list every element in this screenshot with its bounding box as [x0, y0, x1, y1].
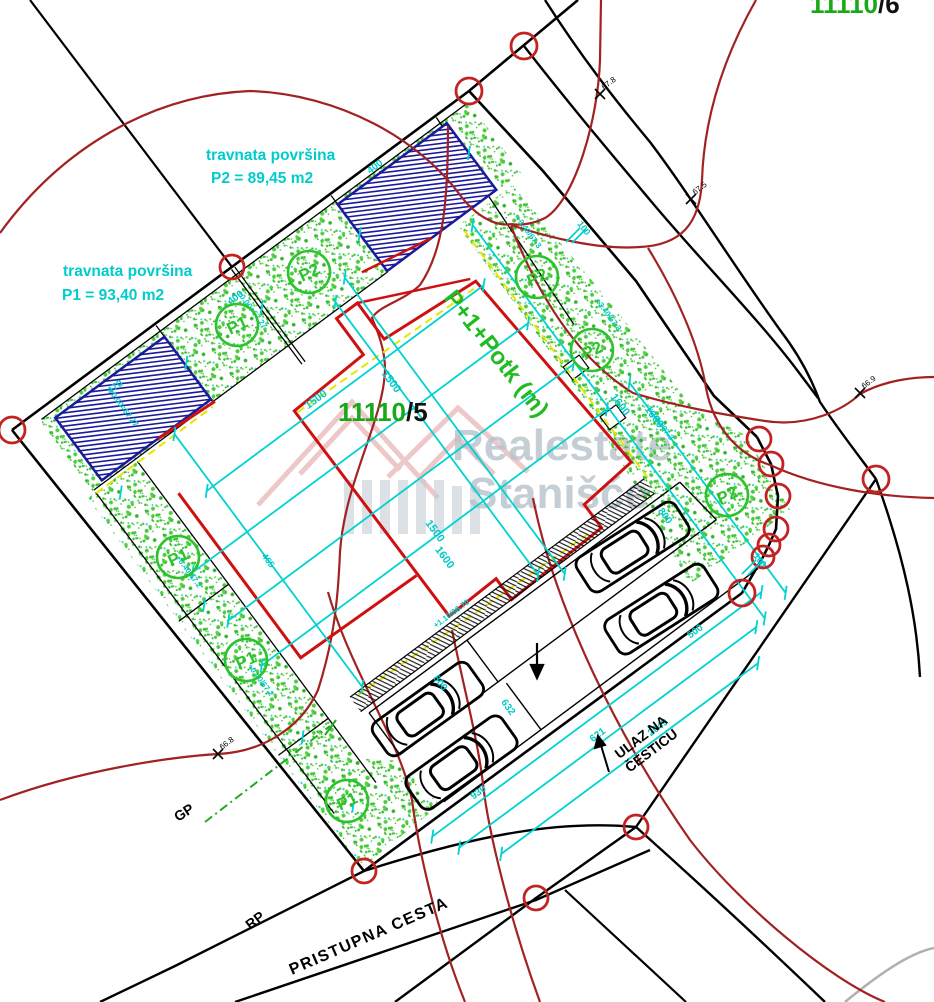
svg-text:travnata površina: travnata površina: [63, 263, 193, 280]
svg-text:P1 = 93,40 m2: P1 = 93,40 m2: [62, 287, 164, 304]
svg-text:travnata površina: travnata površina: [206, 147, 336, 164]
svg-text:11110/6: 11110/6: [810, 0, 900, 19]
svg-text:11110/5: 11110/5: [338, 397, 428, 427]
svg-text:P2 = 89,45 m2: P2 = 89,45 m2: [211, 170, 313, 187]
